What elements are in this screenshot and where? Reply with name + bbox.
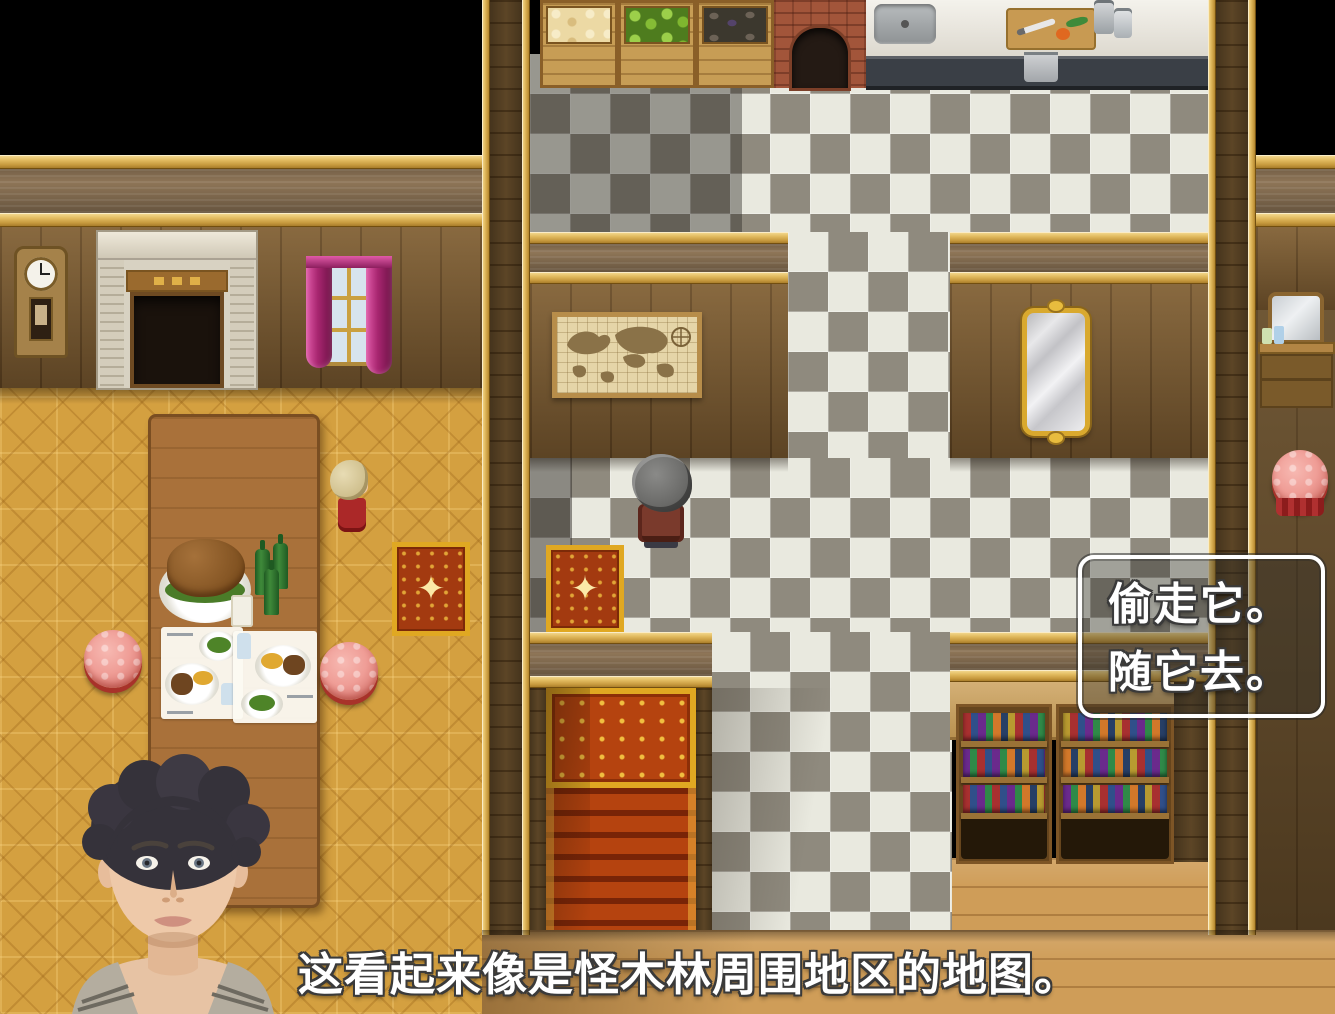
map-room-beam [530, 244, 788, 272]
wall-strip-right-edge [1248, 0, 1256, 935]
book-row [963, 713, 1045, 741]
salad [207, 637, 231, 653]
rug-star-icon: ✦ [571, 569, 600, 609]
map-room-frame-top [530, 232, 788, 244]
book-row [1063, 785, 1167, 813]
mirror-ornament-top [1049, 301, 1063, 311]
stairwell-wall-right [696, 688, 712, 930]
clock-pendulum [35, 305, 47, 325]
vanity-dresser [1258, 292, 1335, 424]
player-sprite [630, 454, 694, 550]
stairwell-wall-left [530, 688, 546, 930]
bookshelf-small [956, 704, 1052, 864]
side-dish [261, 653, 283, 669]
entrance-stud [190, 277, 200, 285]
ornate-rug: ✦ [546, 545, 624, 633]
book-row [1063, 749, 1167, 777]
choice-option-leave[interactable]: 随它去。 [1108, 639, 1321, 707]
shelf-base [961, 819, 1047, 859]
wall-strip-right-edge [1208, 0, 1216, 935]
curtained-window [306, 256, 392, 374]
vanity-stool-skirt [1276, 498, 1324, 516]
knife [167, 711, 193, 714]
vanity-drawers [1260, 354, 1333, 408]
kitchen-sink [874, 4, 936, 44]
vegetable [1056, 28, 1070, 40]
left-wall-shadow [0, 388, 482, 404]
ornate-rug: ✦ [392, 542, 470, 636]
choice-option-steal[interactable]: 偷走它。 [1108, 571, 1321, 639]
perfume-bottle [1262, 328, 1272, 344]
wall-strip-left-edge [522, 0, 530, 935]
game-viewport: ✦ [0, 0, 1335, 1014]
map-continents [557, 317, 697, 393]
grain-crate [540, 0, 618, 88]
entrance-stud [154, 277, 164, 285]
window-curtain-right [366, 256, 392, 374]
grandfather-clock [14, 246, 68, 358]
left-wall-frame-bottom [0, 213, 482, 227]
dialogue-text: 这看起来像是怪木林周围地区的地图。 [298, 938, 1080, 1003]
meat [171, 673, 193, 695]
rug-star-icon: ✦ [417, 569, 446, 609]
cutting-board [1006, 8, 1096, 50]
clock-face [24, 257, 58, 291]
wall-strip-left [490, 0, 522, 935]
oven-opening [792, 28, 848, 88]
left-wall-beam [0, 169, 482, 213]
left-wall-frame-top [0, 155, 482, 169]
place-setting-left [161, 627, 243, 719]
shelf-board [1061, 777, 1169, 783]
character-portrait [42, 742, 304, 1014]
meat [283, 655, 305, 675]
mirror-ornament-bottom [1049, 433, 1063, 443]
shelf-base [1061, 819, 1169, 859]
stairwell-shadow [546, 688, 590, 930]
entrance-column-left [100, 260, 124, 388]
greens [1065, 15, 1088, 28]
bookshelf-large [1056, 704, 1174, 864]
wine-glass [237, 633, 251, 659]
wall-strip-left-edge [482, 0, 490, 935]
kitchen-knife [1016, 18, 1056, 36]
npc-hair [330, 460, 368, 500]
corridor-shadow [712, 688, 832, 932]
salad [249, 695, 275, 711]
hand-towel [1024, 52, 1058, 82]
mirror-room-frame-top [950, 232, 1208, 244]
clock-pendulum-window [29, 297, 53, 341]
fork [287, 695, 313, 698]
brick-oven [774, 0, 866, 88]
window-valance [306, 256, 392, 268]
clock-hand-hour [41, 273, 50, 275]
book-row [963, 785, 1045, 813]
shelf-board [961, 777, 1047, 783]
grain [546, 6, 612, 44]
entrance-lintel [98, 232, 256, 260]
wine-bottle [264, 569, 279, 615]
side-dish [193, 671, 213, 685]
portrait-young-man [42, 742, 304, 1014]
npc-dress [338, 498, 366, 532]
player-hair [632, 454, 692, 512]
map-room-frame-bottom [530, 272, 788, 284]
drink-cup [231, 595, 253, 627]
entrance-beam [126, 270, 228, 292]
corridor-floor-upper [788, 232, 952, 460]
right-wall-beam [1256, 169, 1335, 213]
stairwell-beam [530, 644, 712, 676]
pink-stool [84, 630, 142, 688]
book-row [963, 749, 1045, 777]
shelf-board [1061, 741, 1169, 747]
mirror-room-wall-shadow [950, 458, 1208, 472]
pink-stool [320, 642, 378, 700]
jar [1114, 8, 1132, 38]
mirror-room-frame-bottom [950, 272, 1208, 284]
npc-woman-sprite [330, 460, 374, 538]
wall-strip-right [1216, 0, 1248, 935]
apple-crate [618, 0, 696, 88]
eggplants [702, 6, 768, 44]
right-wall-frame-top [1256, 155, 1335, 169]
entrance-column-right [230, 260, 254, 388]
perfume-bottle [1274, 326, 1284, 344]
ornate-mirror [1022, 308, 1090, 436]
choice-window: 偷走它。 随它去。 [1078, 555, 1325, 718]
apples [624, 6, 690, 44]
sink-drain [901, 20, 909, 28]
right-wall-frame-bottom [1256, 213, 1335, 227]
place-setting-right [233, 631, 317, 723]
mirror-room-beam [950, 244, 1208, 272]
wall-map-poster [552, 312, 702, 398]
jar [1094, 0, 1114, 34]
shelf-board [961, 741, 1047, 747]
stairwell-frame-top [530, 632, 712, 644]
eggplant-crate [696, 0, 774, 88]
entrance-stud [172, 277, 182, 285]
entrance-doorway [96, 230, 258, 390]
entrance-opening [130, 292, 224, 388]
fork [167, 633, 193, 636]
stairwell-frame-bottom [530, 676, 712, 688]
library-floor [952, 858, 1208, 934]
window-curtain-left [306, 256, 332, 368]
